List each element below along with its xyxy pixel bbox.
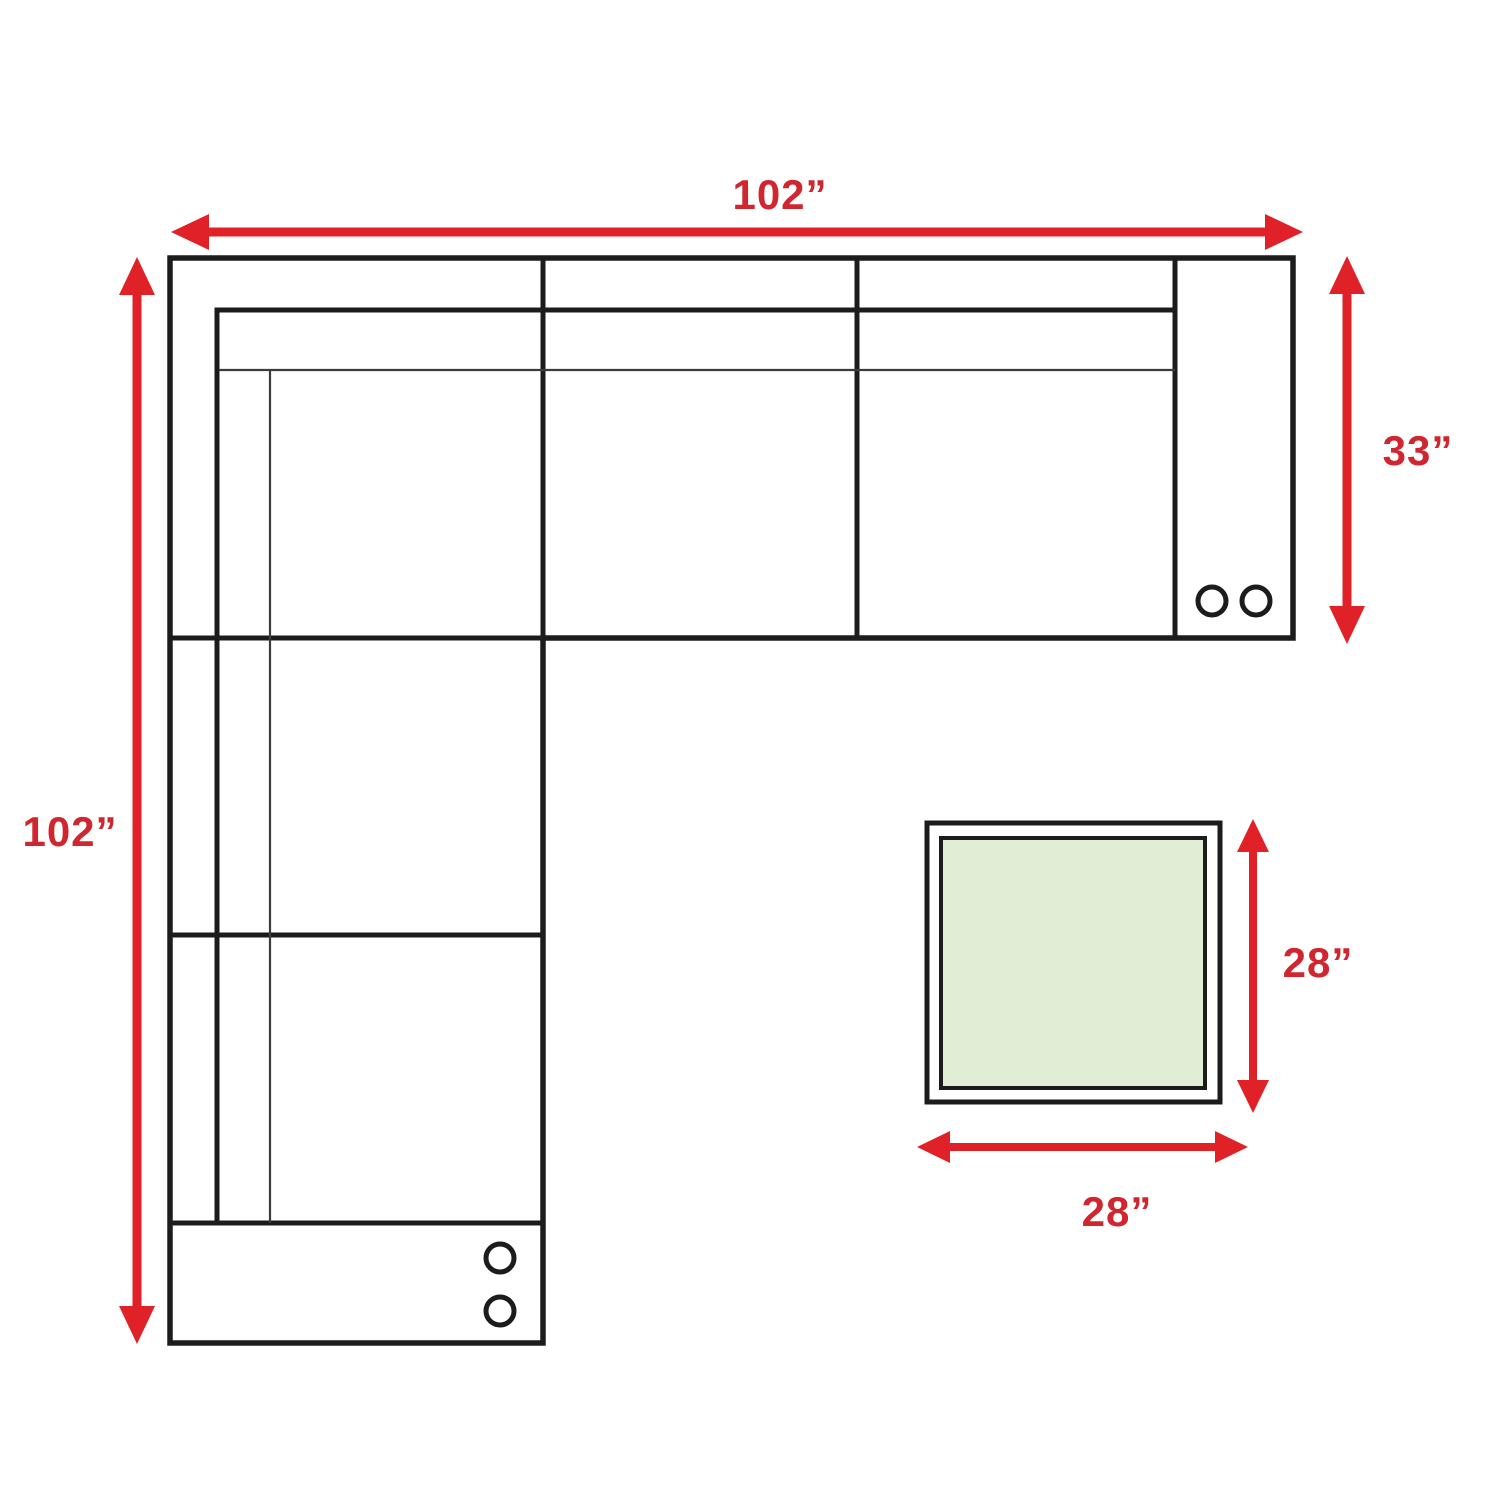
side-table: [927, 823, 1220, 1102]
left-depth-dimension-label: 102”: [22, 808, 117, 856]
dimension-diagram: 102” 102” 33” 28” 28”: [0, 0, 1500, 1500]
arrowhead-down-icon: [119, 1306, 155, 1344]
arrowhead-up-icon: [1329, 256, 1365, 294]
top-width-dimension-label: 102”: [732, 171, 827, 219]
right-section-depth-dimension-arrow: [1329, 256, 1365, 644]
table-depth-dimension-arrow: [1237, 819, 1269, 1113]
arrowhead-up-icon: [1237, 819, 1269, 852]
left-depth-dimension-arrow: [119, 257, 155, 1344]
arrowhead-right-icon: [1265, 214, 1303, 250]
table-top-surface: [941, 838, 1205, 1088]
right-section-depth-dimension-label: 33”: [1383, 427, 1454, 475]
bottom-arm-cup-holder-icons: [486, 1244, 514, 1325]
cup-holder-icon: [1242, 587, 1270, 615]
table-width-dimension-arrow: [917, 1131, 1248, 1163]
table-width-dimension-label: 28”: [1082, 1188, 1153, 1236]
sofa-outer-outline: [170, 258, 1293, 1343]
diagram-drawing: [0, 0, 1500, 1500]
table-depth-dimension-label: 28”: [1283, 939, 1354, 987]
cup-holder-icon: [486, 1297, 514, 1325]
right-arm-cup-holder-icons: [1198, 587, 1270, 615]
arrowhead-left-icon: [171, 214, 209, 250]
arrowhead-right-icon: [1215, 1131, 1248, 1163]
arrowhead-down-icon: [1237, 1080, 1269, 1113]
arrowhead-left-icon: [917, 1131, 950, 1163]
dimension-arrows: [119, 214, 1365, 1344]
sectional-sofa: [170, 258, 1293, 1343]
arrowhead-up-icon: [119, 257, 155, 295]
top-width-dimension-arrow: [171, 214, 1303, 250]
cup-holder-icon: [486, 1244, 514, 1272]
cup-holder-icon: [1198, 587, 1226, 615]
arrowhead-down-icon: [1329, 606, 1365, 644]
